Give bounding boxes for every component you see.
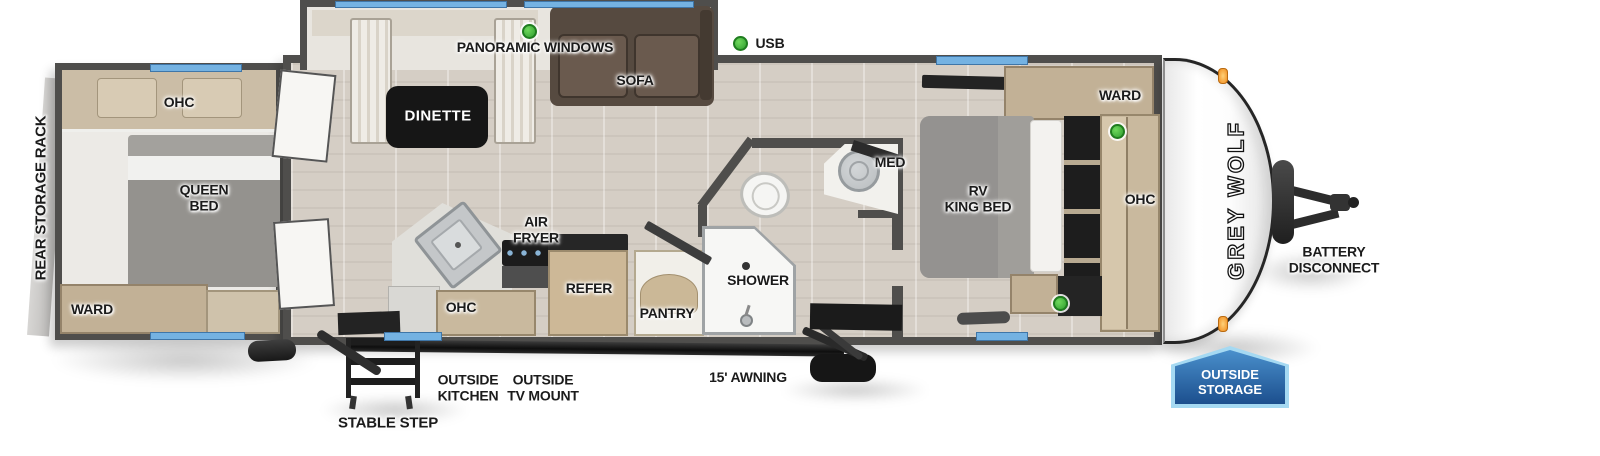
outside-tv-mount-label: OUTSIDE TV MOUNT — [507, 372, 579, 403]
window — [976, 332, 1028, 341]
stable-step — [346, 336, 420, 410]
med-label: MED — [875, 155, 906, 171]
bedroom-dark-cabinet — [1058, 276, 1102, 316]
rear-storage-rack-label: REAR STORAGE RACK — [34, 116, 51, 281]
battery-disconnect-label: BATTERY DISCONNECT — [1289, 244, 1380, 275]
rear-bench — [206, 290, 280, 334]
front-cap — [1163, 58, 1275, 344]
clearance-light — [1218, 316, 1228, 332]
usb-indicator-dot — [1053, 296, 1068, 311]
usb-legend-dot — [733, 36, 748, 51]
window — [150, 332, 245, 340]
window — [335, 1, 507, 8]
refer-label: REFER — [566, 281, 612, 297]
kitchen-ohc-label: OHC — [446, 300, 477, 316]
clearance-light — [1218, 68, 1228, 84]
usb-indicator-dot — [522, 24, 537, 39]
window — [384, 332, 442, 341]
rear-ohc-label: OHC — [164, 95, 195, 111]
shower-drain — [742, 262, 750, 270]
cabinet-door — [97, 78, 157, 118]
queen-bed-label: QUEEN BED — [180, 182, 229, 213]
step-leg — [349, 396, 357, 410]
sofa-armrest — [700, 10, 712, 100]
step-rungs — [346, 338, 420, 398]
awning-arm-folded — [800, 336, 884, 384]
window — [936, 56, 1028, 65]
shower-label: SHOWER — [727, 273, 789, 289]
toilet-bowl — [749, 179, 783, 213]
outside-storage-label: OUTSIDE STORAGE — [1198, 368, 1262, 398]
bedroom-bench — [1010, 274, 1058, 314]
sink-bowl — [849, 161, 869, 181]
rear-bedroom-door — [272, 69, 337, 162]
hitch-coupler — [1330, 194, 1350, 211]
floorplan-canvas: REAR STORAGE RACK OHC QUEEN BED WARD DIN… — [0, 0, 1600, 456]
usb-indicator-dot — [1110, 124, 1125, 139]
stable-step-label: STABLE STEP — [338, 416, 438, 433]
pantry-label: PANTRY — [640, 306, 695, 322]
front-ward-label: WARD — [1099, 88, 1141, 104]
rear-bedroom-door — [273, 218, 335, 310]
king-bed-pillows — [1030, 120, 1062, 272]
second-entry-door — [810, 303, 902, 331]
usb-legend-label: USB — [756, 36, 785, 52]
awning-label: 15' AWNING — [709, 370, 787, 386]
queen-bed-pillows — [128, 156, 280, 180]
brand-logo: GREY WOLF — [1225, 120, 1250, 280]
hitch-coupler-tip — [1348, 197, 1359, 208]
sofa-label: SOFA — [616, 73, 653, 89]
battery-disconnect-switch — [1272, 160, 1294, 244]
exterior-speaker — [247, 339, 296, 362]
dinette-label: DINETTE — [405, 109, 472, 126]
air-fryer-label: AIR FRYER — [513, 214, 559, 245]
window — [524, 1, 694, 8]
front-ohc-label: OHC — [1125, 192, 1156, 208]
outside-kitchen-label: OUTSIDE KITCHEN — [438, 372, 499, 403]
rear-ward-label: WARD — [71, 302, 113, 318]
rv-king-bed-label: RV KING BED — [945, 183, 1012, 214]
panoramic-windows-label: PANORAMIC WINDOWS — [457, 40, 614, 56]
window — [150, 64, 242, 72]
sofa — [550, 6, 714, 106]
tv-mount — [922, 75, 1016, 90]
front-ohc-door — [1102, 117, 1128, 329]
bedroom-step-mat — [957, 311, 1010, 325]
pantry — [634, 250, 704, 336]
